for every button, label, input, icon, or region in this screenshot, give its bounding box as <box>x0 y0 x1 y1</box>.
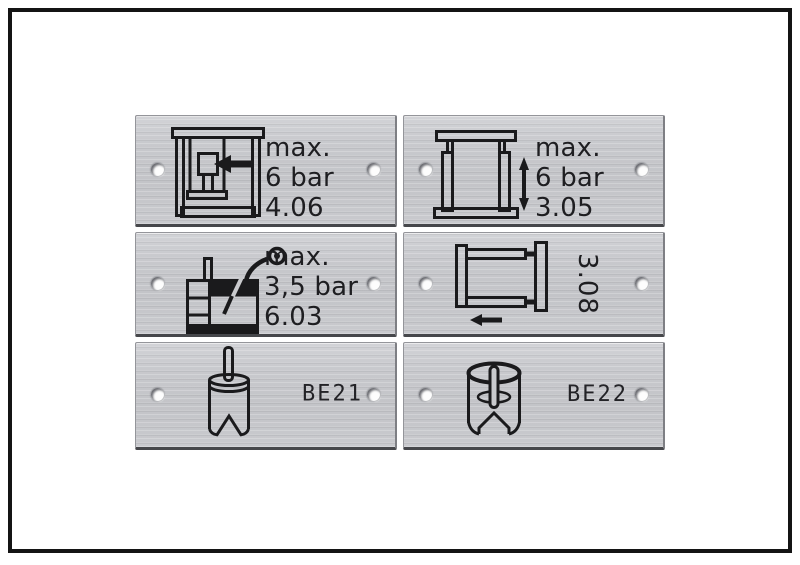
vertical-label: 3.08 <box>572 253 602 315</box>
cylinder-frame-updown-icon <box>430 129 530 221</box>
text-line: max. <box>264 242 358 272</box>
text-line: max. <box>535 133 604 163</box>
plate-3.08: 3.08 <box>403 232 665 337</box>
text-line: 6 bar <box>535 163 604 193</box>
cylinder-slot-icon <box>466 359 522 441</box>
text-line: 3,5 bar <box>264 272 358 302</box>
plate-max-3.5bar-6.03: max. 3,5 bar 6.03 <box>135 232 397 337</box>
text-line: 3.05 <box>535 193 604 223</box>
cylinder-rod-icon <box>205 346 258 438</box>
plate-text: max. 6 bar 3.05 <box>535 133 604 223</box>
text-line: 6 bar <box>265 163 334 193</box>
mounting-hole <box>367 388 380 401</box>
mounting-hole <box>151 277 164 290</box>
mounting-hole <box>419 277 432 290</box>
mounting-hole <box>635 277 648 290</box>
slide-frame-left-arrow-icon <box>450 241 550 329</box>
plate-max-6bar-3.05: max. 6 bar 3.05 <box>403 115 665 227</box>
plate-be21: BE21 <box>135 342 397 450</box>
mounting-hole <box>367 277 380 290</box>
plate-text: max. 3,5 bar 6.03 <box>264 242 358 332</box>
plate-grid: max. 6 bar 4.06 <box>135 115 665 450</box>
text-line: 6.03 <box>264 302 358 332</box>
vertical-label-wrap: 3.08 <box>559 233 615 334</box>
mounting-hole <box>367 163 380 176</box>
plate-text: max. 6 bar 4.06 <box>265 133 334 223</box>
plate-be22: BE22 <box>403 342 665 450</box>
text-line: max. <box>265 133 334 163</box>
text-line: 4.06 <box>265 193 334 223</box>
plate-max-6bar-4.06: max. 6 bar 4.06 <box>135 115 397 227</box>
plate-code: BE22 <box>567 382 628 407</box>
product-photo: max. 6 bar 4.06 <box>0 0 800 565</box>
mounting-hole <box>635 388 648 401</box>
press-frame-arrow-icon <box>170 126 266 223</box>
mounting-hole <box>151 388 164 401</box>
mounting-hole <box>151 163 164 176</box>
mounting-hole <box>635 163 648 176</box>
plate-code: BE21 <box>302 381 363 406</box>
photo-frame: max. 6 bar 4.06 <box>8 8 792 553</box>
mounting-hole <box>419 388 432 401</box>
